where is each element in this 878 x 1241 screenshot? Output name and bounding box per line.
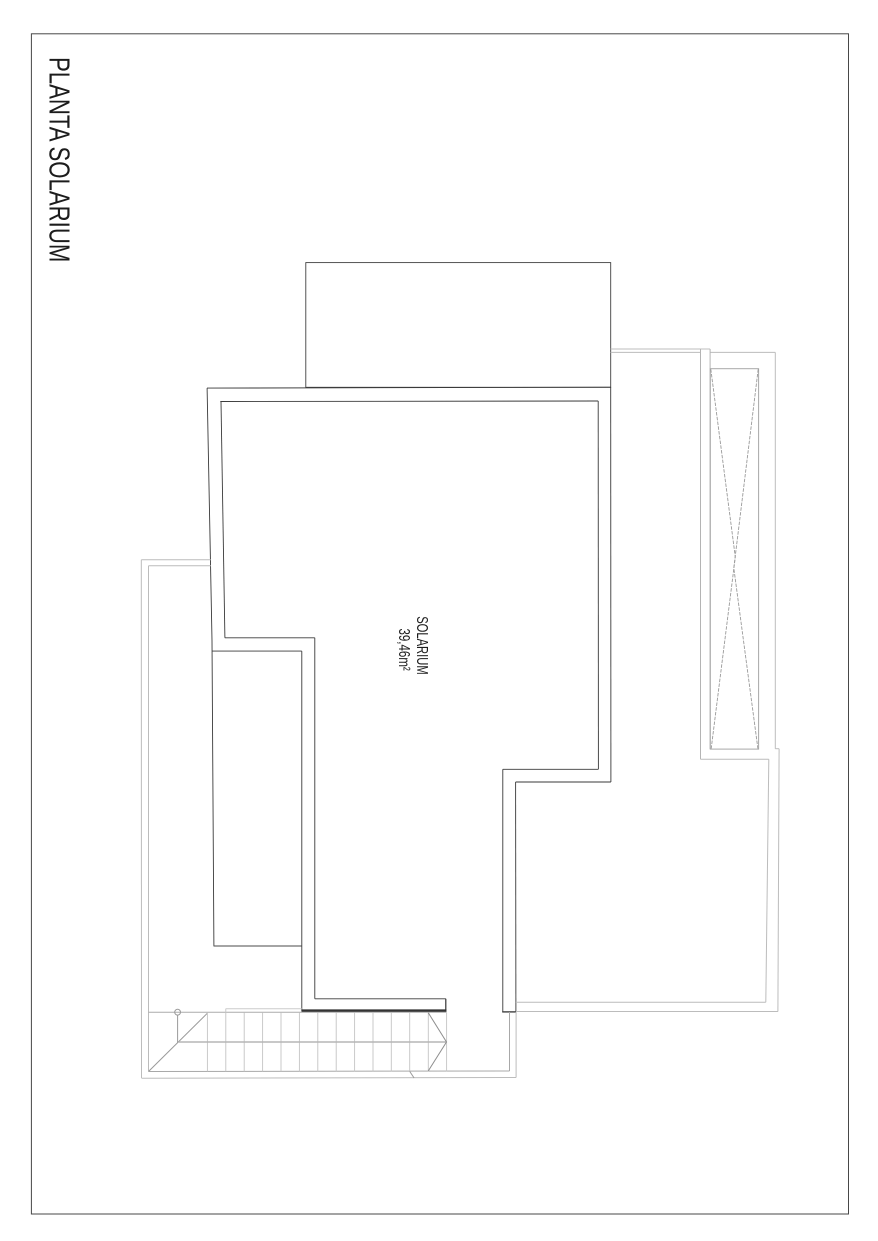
svg-text:PLANTA SOLARIUM: PLANTA SOLARIUM bbox=[43, 57, 74, 262]
svg-text:SOLARIUM: SOLARIUM bbox=[413, 616, 432, 674]
svg-text:39,46m²: 39,46m² bbox=[395, 629, 413, 672]
